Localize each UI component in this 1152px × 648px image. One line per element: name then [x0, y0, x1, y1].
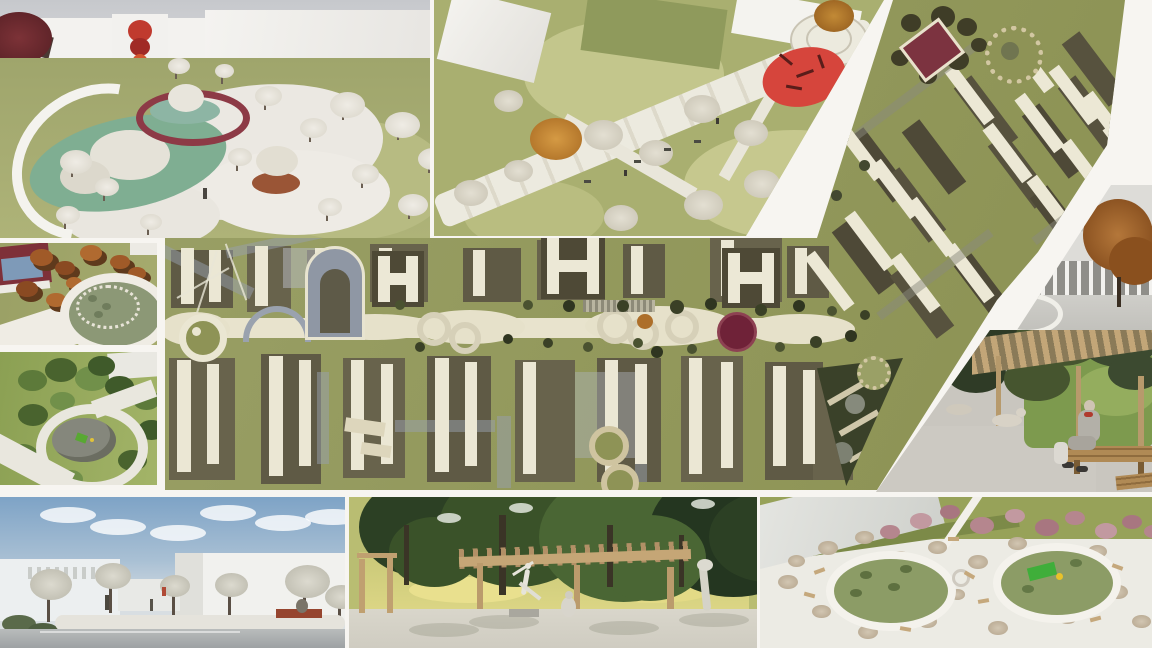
tree-trunk — [1117, 277, 1121, 307]
band-grove — [901, 14, 921, 32]
bench-small — [900, 626, 912, 632]
person — [624, 170, 627, 176]
plan-building-slab — [435, 358, 449, 472]
white-tree — [584, 120, 623, 150]
plan-tree — [670, 300, 684, 314]
white-tree — [504, 160, 533, 182]
cloud — [255, 515, 311, 531]
beige-tree — [855, 531, 874, 544]
plan-tree — [755, 304, 767, 316]
pink-tree — [910, 513, 932, 529]
floor-shadow — [589, 621, 659, 635]
sculpture-plinth — [509, 609, 539, 617]
plan-building-slab — [631, 246, 643, 294]
plan-tree — [705, 298, 717, 310]
panel-aerial-red-pavilion-oval — [0, 243, 157, 345]
pink-tree — [970, 517, 994, 534]
grove-circle — [845, 394, 865, 414]
green-tree — [18, 404, 48, 426]
grey-tree — [285, 565, 330, 598]
cloud — [90, 519, 146, 535]
plan-dark-block — [623, 244, 665, 298]
pink-tree — [1095, 523, 1117, 539]
oval-shrub — [900, 565, 912, 573]
white-tree — [639, 140, 673, 166]
panel-pond-plaza-render — [0, 497, 345, 648]
red-figure — [162, 587, 166, 596]
oval-playground — [993, 543, 1121, 623]
plan-dark-block — [463, 248, 521, 302]
plan-tree — [687, 344, 697, 354]
oval-shrub — [888, 583, 900, 591]
autumn-tree — [80, 245, 102, 261]
plan-tree — [617, 300, 629, 312]
plan-building-slab — [269, 356, 283, 476]
beige-tree — [988, 621, 1008, 635]
white-tree — [255, 86, 282, 106]
plan-tree — [503, 334, 513, 344]
bench-small — [948, 537, 959, 541]
panel-aerial-circular-playground — [0, 352, 157, 485]
plan-building-slab — [523, 362, 536, 474]
grey-tree — [30, 569, 72, 600]
pink-tree — [1035, 519, 1059, 536]
plan-tree — [583, 342, 593, 352]
swing-frame-post — [387, 553, 393, 613]
cloud — [305, 509, 345, 525]
orange-tree — [637, 314, 653, 329]
plan-tree — [415, 342, 425, 352]
panel-sculpture-pergola-render — [349, 497, 757, 648]
plaza-shrub — [102, 303, 111, 310]
white-tree — [352, 164, 379, 184]
yellow-dot — [1056, 573, 1063, 580]
bench — [584, 180, 591, 183]
sky-gap — [509, 503, 533, 513]
white-tree — [684, 95, 720, 123]
person-seated — [561, 597, 576, 617]
ring-tree — [168, 84, 204, 112]
plan-building-slab — [473, 250, 485, 296]
man-shoe — [1076, 466, 1088, 472]
plan-tree — [395, 300, 405, 310]
oval-shrub — [1022, 585, 1034, 593]
white-tree — [168, 58, 190, 74]
plan-tree — [845, 330, 857, 342]
plan-tree — [860, 310, 870, 320]
panel-two-oval-playgrounds — [760, 497, 1152, 648]
bench-small — [814, 567, 826, 575]
plan-h-bar — [738, 272, 764, 284]
plan-tree — [775, 342, 785, 352]
orange-tree — [814, 0, 854, 32]
panel-aerial-oval-ring-park — [0, 0, 430, 238]
beige-tree — [812, 605, 831, 618]
plan-building-slab — [177, 360, 191, 472]
white-tree — [734, 120, 768, 146]
oval-shrub — [1070, 559, 1082, 567]
cloud — [200, 505, 256, 521]
man-legs — [1068, 436, 1096, 450]
bench-small — [804, 592, 816, 599]
orange-tree — [530, 118, 582, 160]
dog-head — [1016, 408, 1026, 417]
sky-gap — [691, 499, 715, 509]
beige-tree — [928, 541, 947, 554]
planter-tree — [256, 146, 298, 176]
arched-building — [305, 246, 365, 340]
white-tree — [494, 90, 523, 112]
beige-tree — [778, 575, 798, 589]
band-grove — [957, 18, 977, 36]
person-silhouette — [150, 599, 153, 611]
band-circle-core — [1001, 42, 1019, 60]
plan-building-slab — [299, 360, 311, 466]
plan-building-slab — [689, 358, 702, 474]
sculpture-right-top — [697, 559, 713, 571]
bench-far — [1115, 472, 1152, 491]
plan-tree — [543, 338, 553, 348]
man-scarf — [1084, 412, 1093, 417]
plan-building-slab — [207, 364, 219, 464]
plan-tree — [651, 346, 663, 358]
bench-small — [978, 598, 990, 604]
plan-h-bar — [388, 273, 408, 285]
band-tree — [841, 104, 852, 115]
plan-building-slab — [773, 366, 786, 466]
green-tree — [88, 356, 115, 376]
band-tree — [859, 160, 870, 171]
grey-tree — [215, 573, 248, 597]
beige-tree — [818, 541, 838, 555]
white-tree — [814, 140, 845, 164]
white-tree — [330, 92, 365, 118]
cloud — [40, 507, 96, 523]
floor-shadow — [469, 615, 539, 629]
band-building-slab — [1014, 93, 1064, 154]
path-loop — [417, 312, 451, 346]
arched-building-core — [320, 269, 350, 333]
swing-frame-post — [359, 559, 365, 613]
white-tree — [744, 170, 780, 198]
tree-trunk — [404, 525, 409, 585]
red-plaza-circle — [717, 312, 757, 352]
plan-building-slab — [465, 362, 477, 466]
play-dot — [90, 438, 94, 442]
plan-building-slab — [635, 364, 647, 464]
plaza-ring — [589, 426, 629, 466]
white-tree — [454, 180, 488, 206]
corridor-node-dot — [192, 327, 201, 336]
white-tree — [140, 214, 162, 230]
pond-glint — [40, 631, 240, 633]
grove-path — [838, 409, 879, 436]
building-sliver — [130, 243, 157, 255]
person — [716, 118, 719, 124]
beige-tree — [968, 555, 988, 569]
beige-tree — [788, 555, 805, 567]
floor-shadow — [409, 623, 479, 637]
autumn-tree — [110, 255, 130, 269]
building — [437, 0, 551, 83]
white-tree — [398, 194, 428, 216]
plan-h-bar — [557, 260, 589, 272]
plan-road — [497, 416, 511, 488]
person-seated — [296, 599, 308, 613]
person-silhouette — [105, 595, 109, 610]
green-tree — [18, 370, 47, 391]
panel-aerial-promenade — [434, 0, 886, 236]
autumn-tree — [1109, 237, 1152, 285]
plaza-shrub — [88, 295, 97, 302]
plan-road — [317, 372, 329, 464]
white-tree — [604, 205, 638, 231]
plan-building-slab — [721, 362, 733, 468]
white-tree — [215, 64, 234, 78]
white-tree — [385, 112, 420, 138]
oval-shrub — [850, 589, 862, 597]
plan-tree — [523, 300, 533, 310]
planter-basket — [1054, 442, 1068, 464]
path-loop — [665, 310, 699, 344]
bench — [694, 140, 701, 143]
bench — [634, 160, 641, 163]
swing-frame-bar — [357, 553, 397, 558]
beige-tree — [1132, 615, 1151, 628]
white-tree — [684, 190, 723, 220]
autumn-tree — [16, 281, 38, 297]
plan-tree — [563, 300, 575, 312]
sky-gap — [437, 513, 461, 523]
plan-tree — [810, 336, 822, 348]
plan-tree — [633, 338, 643, 348]
oval-shrub — [860, 571, 872, 579]
white-tree — [789, 205, 823, 231]
band-building-slab — [1102, 123, 1152, 184]
band-tree — [831, 190, 842, 201]
plaza-shrub — [94, 311, 103, 318]
autumn-tree — [55, 261, 75, 275]
cloud — [150, 525, 206, 541]
dog — [946, 404, 972, 415]
person — [203, 188, 207, 199]
band-building-slab — [944, 65, 994, 126]
plan-building-slab — [255, 246, 268, 306]
white-tree — [300, 118, 327, 138]
path-loop — [449, 322, 481, 354]
corridor-plaza — [745, 314, 855, 344]
corridor-node — [179, 314, 227, 362]
plan-building-slab — [795, 248, 807, 294]
grove-ring — [857, 356, 891, 390]
render-collage — [0, 0, 1152, 648]
plan-building-slab — [803, 370, 815, 464]
bench — [664, 148, 671, 151]
oval-playground — [826, 551, 956, 631]
plan-tree — [827, 306, 837, 316]
person-head — [565, 591, 573, 599]
floor-shadow — [679, 613, 749, 627]
autumn-tree — [30, 249, 53, 266]
plan-tree — [793, 300, 805, 312]
green-tree — [45, 358, 77, 382]
